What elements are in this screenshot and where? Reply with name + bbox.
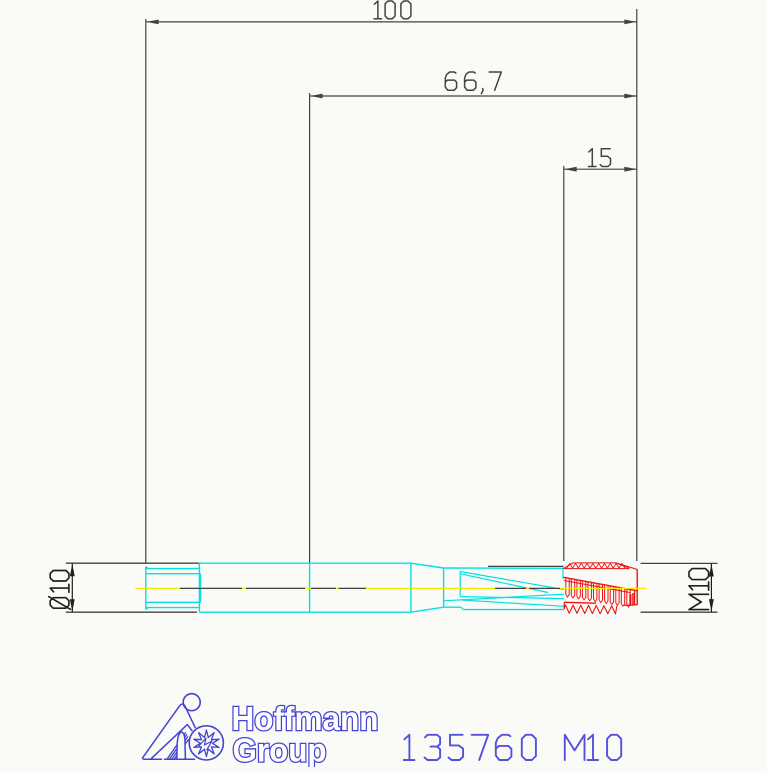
svg-text:Group: Group	[233, 732, 327, 767]
